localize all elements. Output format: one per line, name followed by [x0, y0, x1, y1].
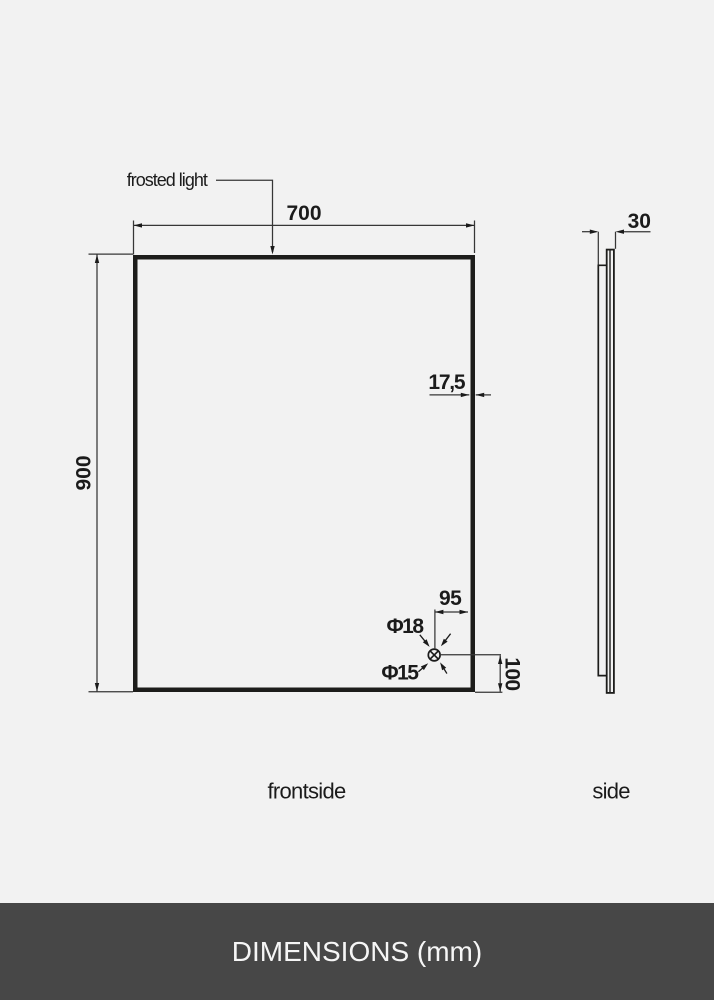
svg-text:100: 100 [501, 657, 524, 690]
svg-text:700: 700 [287, 202, 322, 225]
svg-text:95: 95 [439, 587, 462, 610]
svg-text:DIMENSIONS (mm): DIMENSIONS (mm) [232, 936, 482, 967]
svg-text:Φ18: Φ18 [387, 615, 425, 638]
svg-text:side: side [592, 779, 630, 804]
svg-text:17,5: 17,5 [428, 371, 465, 394]
svg-text:Φ15: Φ15 [381, 662, 419, 685]
svg-text:frontside: frontside [268, 779, 346, 804]
svg-text:30: 30 [628, 210, 651, 233]
svg-text:900: 900 [73, 455, 96, 490]
svg-text:frosted light: frosted light [127, 170, 208, 190]
